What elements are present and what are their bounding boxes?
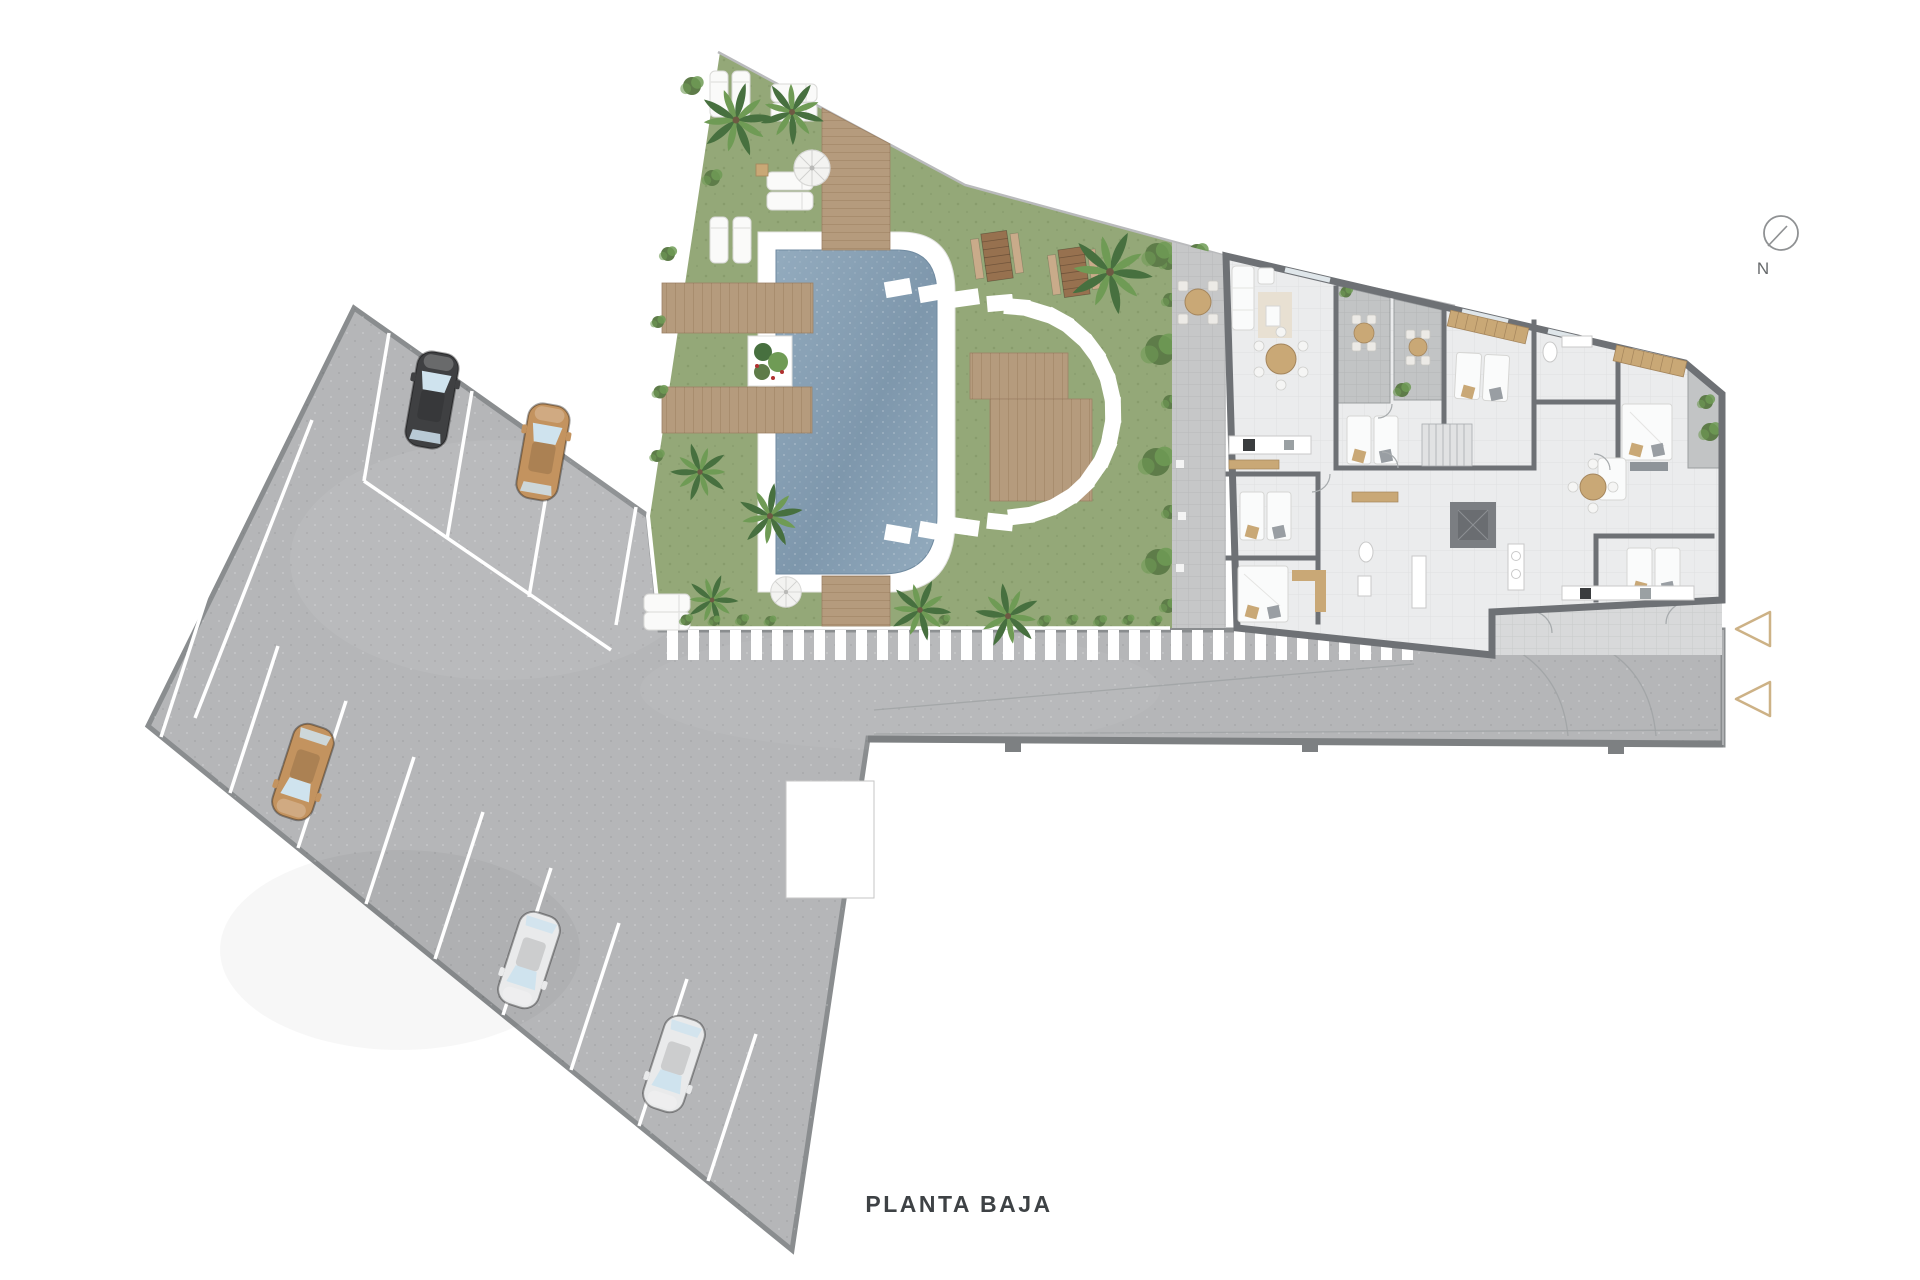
sun-lounger xyxy=(710,217,728,263)
parasol-icon xyxy=(794,150,830,186)
service-notch xyxy=(786,781,874,898)
entrance-arrow-icon xyxy=(1736,612,1770,646)
compass-label: N xyxy=(1757,259,1769,278)
apartment-building xyxy=(1226,256,1722,655)
sun-lounger xyxy=(644,594,690,612)
bush-icon xyxy=(680,76,703,95)
sun-lounger xyxy=(733,217,751,263)
compass: N xyxy=(1757,216,1798,278)
bush-icon xyxy=(659,246,677,261)
entrance-arrows xyxy=(1736,612,1770,716)
elevator xyxy=(1450,502,1496,548)
entrance-arrow-icon xyxy=(1736,682,1770,716)
side-table xyxy=(756,164,768,176)
site-plan: N PLANTA BAJA xyxy=(0,0,1920,1280)
sun-lounger xyxy=(767,192,813,210)
plan-title: PLANTA BAJA xyxy=(865,1191,1052,1217)
kitchen-counter xyxy=(1562,586,1694,600)
kitchen-counter xyxy=(1229,436,1311,454)
compass-icon xyxy=(1764,216,1798,250)
parasol-icon xyxy=(771,577,802,608)
garden-path xyxy=(1172,242,1226,628)
planter xyxy=(748,336,792,386)
stairs xyxy=(1422,424,1472,466)
